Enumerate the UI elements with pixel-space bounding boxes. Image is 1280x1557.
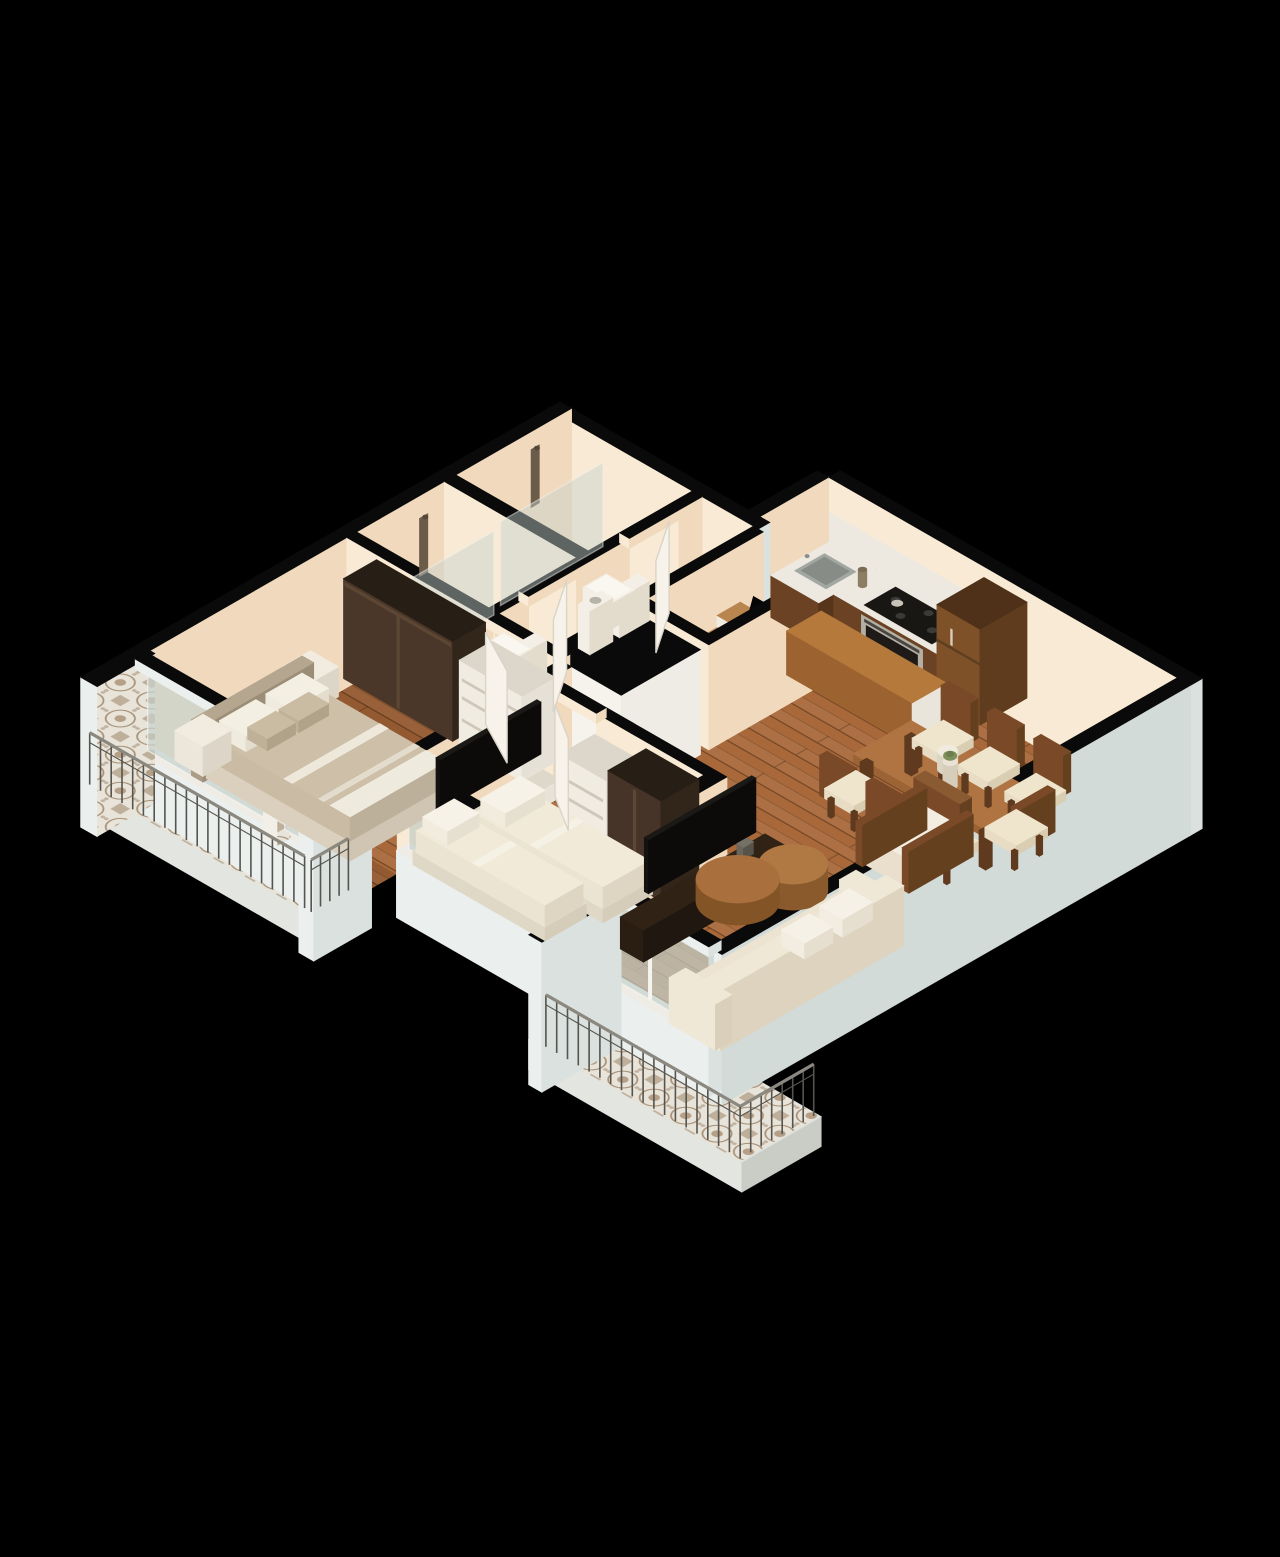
table-plant-leaf [946,751,954,757]
chair-leg [915,746,922,768]
chair-leg [962,773,969,795]
cooking-pot [891,600,903,607]
burner-2 [896,613,906,619]
apartment-3d-floorplan [0,0,1280,1557]
floorplan-render-canvas [0,0,1280,1557]
coffee-table-2 [696,855,780,925]
chair-leg [1036,835,1043,857]
fridge-handle [951,629,953,646]
shower-head-2 [422,515,428,520]
shower-fixture-1 [531,445,539,508]
shower-head-1 [534,446,540,451]
burner-3 [924,610,934,616]
shower-fixture-2 [420,514,428,577]
burner-4 [927,627,937,633]
kitchen-faucet [805,554,810,558]
wardrobe-seam [397,614,400,709]
chair-leg [1011,849,1018,871]
chair-leg [828,797,835,819]
chair-leg [985,786,992,808]
counter-bottle [858,567,867,588]
sink-basin-1 [590,597,602,604]
